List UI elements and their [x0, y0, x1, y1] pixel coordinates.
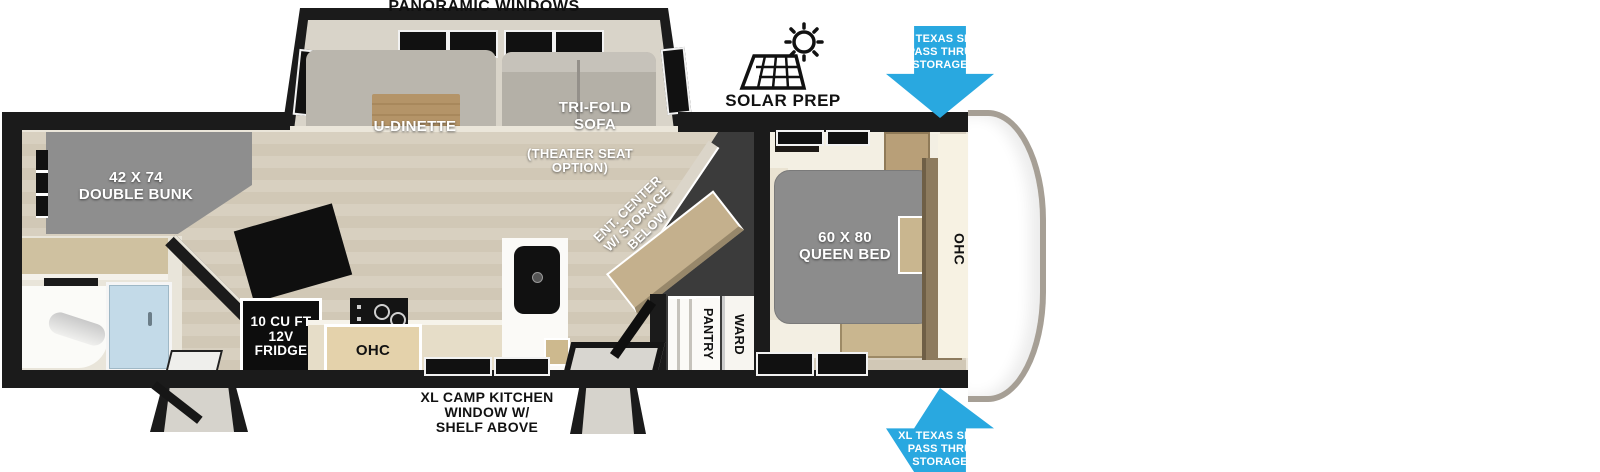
- label-panoramic-windows: PANORAMIC WINDOWS: [334, 0, 634, 16]
- kitchen-window: [494, 357, 550, 376]
- label-theater-option: (THEATER SEAT OPTION): [505, 147, 655, 176]
- label-pantry: PANTRY: [696, 298, 718, 370]
- bunk-window: [36, 150, 48, 218]
- label-trifold-sofa: TRI-FOLD SOFA: [530, 100, 660, 133]
- cooktop-knob: [357, 305, 361, 309]
- label-ward: WARD: [727, 298, 751, 370]
- front-cap: [968, 110, 1046, 402]
- storage-arrow-down-icon: XL TEXAS SIZE PASS THRU STORAGE: [886, 26, 994, 118]
- label-camp-kitchen: XL CAMP KITCHEN WINDOW W/ SHELF ABOVE: [397, 390, 577, 435]
- bedroom-window-top: [826, 130, 870, 146]
- main-entry-step-tread: [582, 388, 634, 434]
- kitchen-window: [424, 357, 492, 376]
- sink-drain: [532, 272, 543, 283]
- cooktop-burner: [374, 304, 390, 320]
- shower-glass-door: [106, 282, 172, 372]
- wall-bedroom-divider: [754, 128, 770, 374]
- bedroom-window-bottom: [756, 352, 814, 376]
- wall-left: [2, 112, 22, 388]
- cooktop-knob: [357, 317, 361, 321]
- bedroom-window-bottom: [816, 352, 868, 376]
- bath-cabinet: [22, 238, 168, 280]
- label-pass-thru-storage-top: XL TEXAS SIZE PASS THRU STORAGE: [886, 33, 994, 73]
- solar-prep-icon: [738, 20, 842, 94]
- label-double-bunk: 42 X 74 DOUBLE BUNK: [46, 170, 226, 203]
- wall-top-left: [2, 112, 290, 130]
- label-u-dinette: U-DINETTE: [340, 119, 490, 136]
- bedroom-window-top: [776, 130, 824, 146]
- label-pass-thru-storage-bottom: XL TEXAS SIZE PASS THRU STORAGE: [886, 430, 994, 470]
- floorplan-canvas: ENT. CENTER W/ STORAGE BELOW PANTRY WARD…: [0, 0, 1600, 472]
- shower-door-handle: [148, 312, 152, 326]
- label-solar-prep: SOLAR PREP: [698, 92, 868, 111]
- label-queen-bed: 60 X 80 QUEEN BED: [766, 230, 924, 263]
